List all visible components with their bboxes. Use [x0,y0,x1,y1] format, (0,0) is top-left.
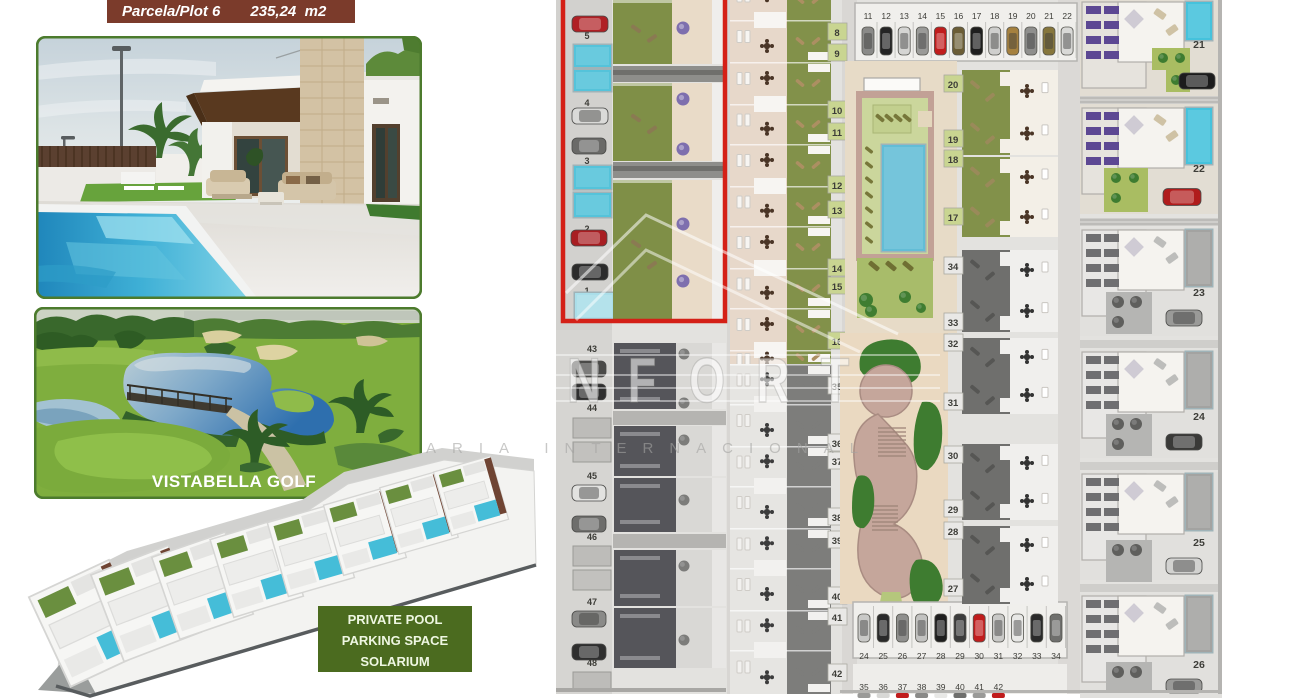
svg-text:12: 12 [832,181,843,192]
svg-text:O: O [689,345,725,415]
svg-text:18: 18 [990,11,1000,21]
svg-text:45: 45 [587,471,597,481]
svg-text:28: 28 [948,527,959,538]
svg-text:4: 4 [584,98,589,108]
svg-text:27: 27 [948,584,959,595]
svg-text:33: 33 [1032,651,1042,661]
svg-text:34: 34 [948,262,959,273]
svg-text:N: N [567,345,601,415]
svg-text:48: 48 [587,658,597,668]
svg-text:28: 28 [936,651,946,661]
svg-text:21: 21 [1044,11,1054,21]
svg-text:16: 16 [954,11,964,21]
svg-text:30: 30 [974,651,984,661]
svg-text:33: 33 [948,318,959,329]
svg-text:F: F [628,345,656,415]
svg-text:24: 24 [1193,411,1205,423]
svg-text:29: 29 [948,505,959,516]
svg-text:14: 14 [832,264,843,275]
svg-text:8: 8 [834,28,839,39]
svg-text:23: 23 [1193,287,1205,299]
svg-text:13: 13 [832,206,843,217]
svg-text:47: 47 [587,597,597,607]
svg-text:T: T [821,345,850,415]
svg-text:19: 19 [1008,11,1018,21]
svg-text:32: 32 [948,339,959,350]
svg-text:41: 41 [832,613,843,624]
svg-text:11: 11 [832,128,843,139]
svg-text:22: 22 [1193,163,1205,175]
svg-text:32: 32 [1013,651,1023,661]
svg-text:22: 22 [1062,11,1072,21]
svg-text:17: 17 [972,11,982,21]
svg-text:14: 14 [918,11,928,21]
svg-text:21: 21 [1193,39,1205,51]
svg-text:11: 11 [864,11,873,21]
svg-text:34: 34 [1051,651,1061,661]
svg-text:30: 30 [948,451,959,462]
svg-text:9: 9 [834,49,839,60]
svg-text:ARIA INTERNACIONAL: ARIA INTERNACIONAL [426,440,874,457]
svg-text:26: 26 [898,651,908,661]
svg-text:29: 29 [955,651,965,661]
svg-text:24: 24 [859,651,869,661]
svg-text:31: 31 [994,651,1004,661]
svg-text:17: 17 [948,213,959,224]
svg-text:12: 12 [881,11,891,21]
svg-text:R: R [756,345,790,415]
svg-text:27: 27 [917,651,927,661]
svg-text:25: 25 [1193,537,1205,549]
svg-text:25: 25 [878,651,888,661]
svg-text:26: 26 [1193,659,1205,671]
svg-text:10: 10 [832,106,843,117]
svg-text:42: 42 [832,669,843,680]
svg-text:5: 5 [584,31,589,41]
svg-text:18: 18 [948,155,959,166]
svg-text:31: 31 [948,398,959,409]
svg-text:20: 20 [948,80,959,91]
svg-text:13: 13 [899,11,909,21]
svg-text:46: 46 [587,532,597,542]
svg-text:15: 15 [936,11,946,21]
svg-text:19: 19 [948,135,959,146]
svg-text:20: 20 [1026,11,1036,21]
svg-text:15: 15 [832,282,843,293]
